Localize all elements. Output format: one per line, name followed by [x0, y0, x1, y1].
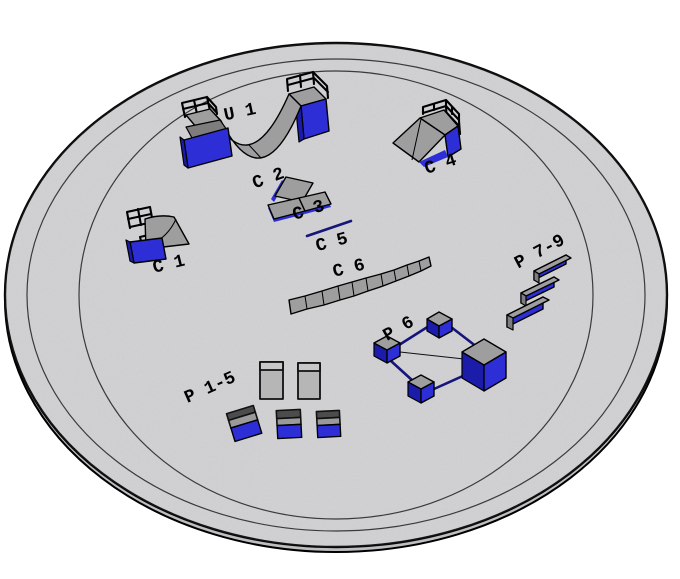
- tall-box-b-top: [298, 363, 320, 371]
- p1-5-small-box-2: [276, 409, 301, 438]
- small-box-3-blue: [317, 424, 341, 437]
- p1-5-tall-box-b: [298, 363, 320, 399]
- tall-box-a-top: [260, 362, 283, 370]
- p1-5-tall-box-a: [260, 362, 283, 399]
- p1-5-small-box-3: [316, 410, 340, 437]
- small-box-2-blue: [277, 424, 302, 438]
- p8-ledge-end: [521, 293, 526, 306]
- skatepark-scene: U 1 C 4 C 1 C 2 C 3 C 5: [0, 0, 680, 579]
- u1-right-base-blue: [301, 99, 329, 139]
- skatepark-3d-view: U 1 C 4 C 1 C 2 C 3 C 5: [0, 0, 680, 579]
- p9-ledge-end: [507, 315, 513, 330]
